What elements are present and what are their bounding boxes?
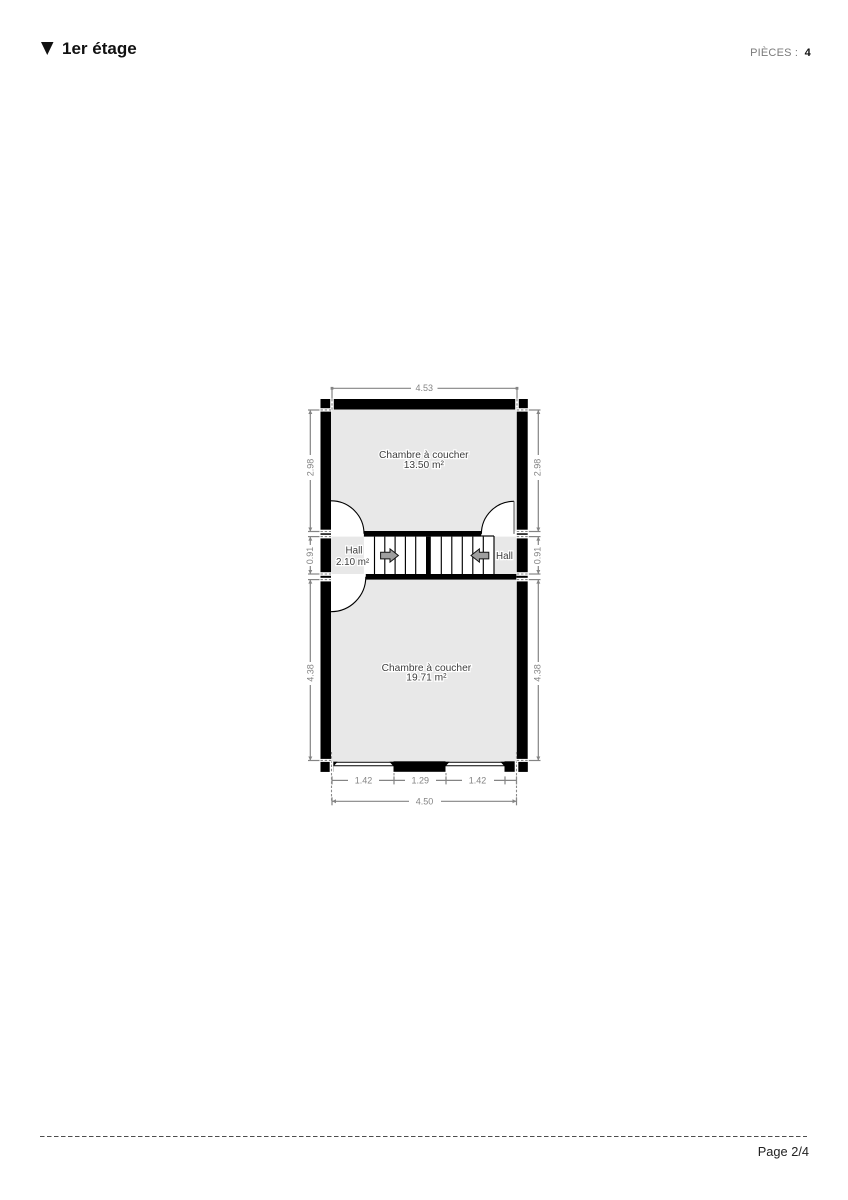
svg-text:1.42: 1.42 xyxy=(355,776,373,786)
svg-text:4.38: 4.38 xyxy=(305,664,315,682)
svg-text:4.53: 4.53 xyxy=(416,383,434,393)
svg-text:Hall: Hall xyxy=(346,545,363,556)
svg-text:Hall: Hall xyxy=(496,551,513,562)
svg-text:4.38: 4.38 xyxy=(533,664,543,682)
svg-text:2.10 m²: 2.10 m² xyxy=(336,557,370,568)
svg-text:0.91: 0.91 xyxy=(533,547,543,565)
svg-text:13.50 m²: 13.50 m² xyxy=(404,460,445,471)
svg-text:1.29: 1.29 xyxy=(412,776,430,786)
svg-text:19.71 m²: 19.71 m² xyxy=(406,673,447,684)
svg-text:2.98: 2.98 xyxy=(305,459,315,477)
svg-text:1.42: 1.42 xyxy=(469,776,487,786)
svg-text:0.91: 0.91 xyxy=(305,547,315,565)
svg-text:2.98: 2.98 xyxy=(533,459,543,477)
svg-text:4.50: 4.50 xyxy=(416,796,434,806)
